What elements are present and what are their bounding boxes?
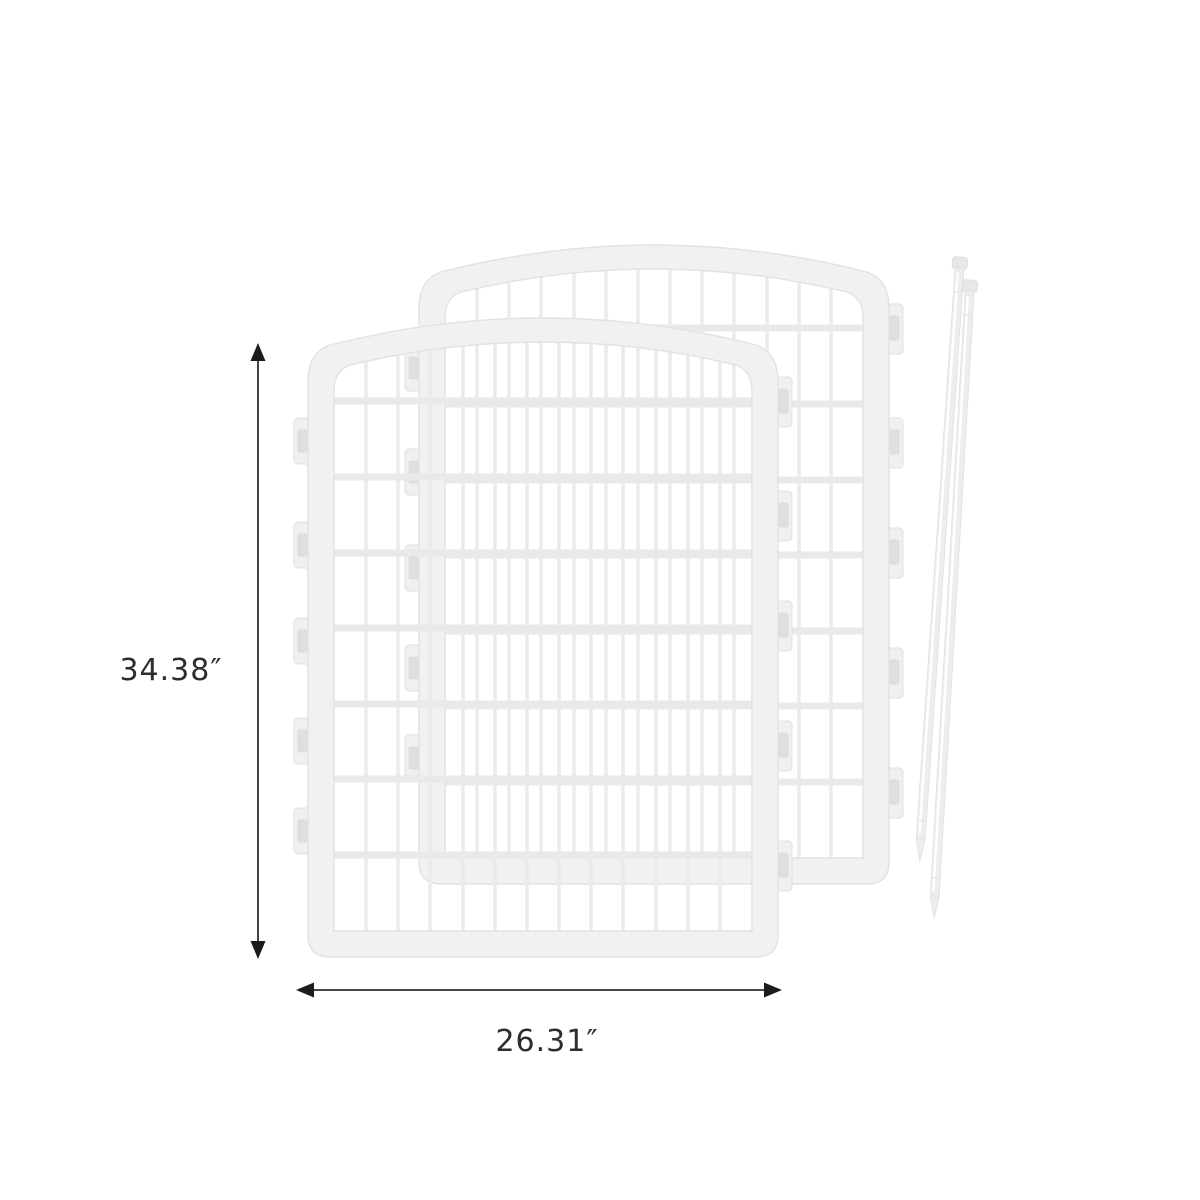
- height-dimension-label: 34.38″: [91, 653, 251, 688]
- arrowhead-down-icon: [251, 941, 266, 959]
- arrowhead-left-icon: [296, 983, 314, 998]
- front-panel: [294, 287, 792, 957]
- arrowhead-right-icon: [764, 983, 782, 998]
- width-dimension-label: 26.31″: [467, 1024, 627, 1059]
- diagram-canvas: [0, 0, 1200, 1200]
- rear-panel: [405, 214, 903, 884]
- arrowhead-up-icon: [251, 343, 266, 361]
- product-dimension-diagram: 34.38″ 26.31″: [0, 0, 1200, 1200]
- width-dimension-line: [296, 983, 782, 998]
- height-dimension-line: [251, 343, 266, 959]
